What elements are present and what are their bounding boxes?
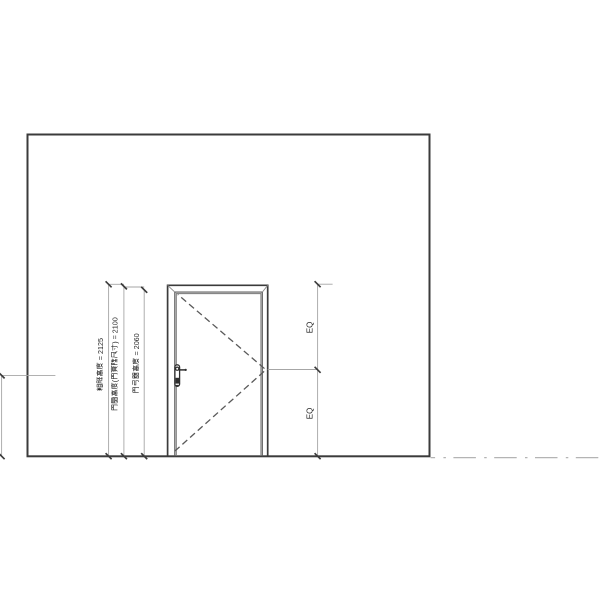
svg-text:= 2060: = 2060 [132, 333, 141, 357]
svg-text:EQ: EQ [306, 408, 315, 420]
svg-text:= 2125: = 2125 [96, 338, 105, 362]
svg-text:EQ: EQ [306, 322, 315, 334]
svg-text:) = 2100: ) = 2100 [111, 317, 120, 344]
